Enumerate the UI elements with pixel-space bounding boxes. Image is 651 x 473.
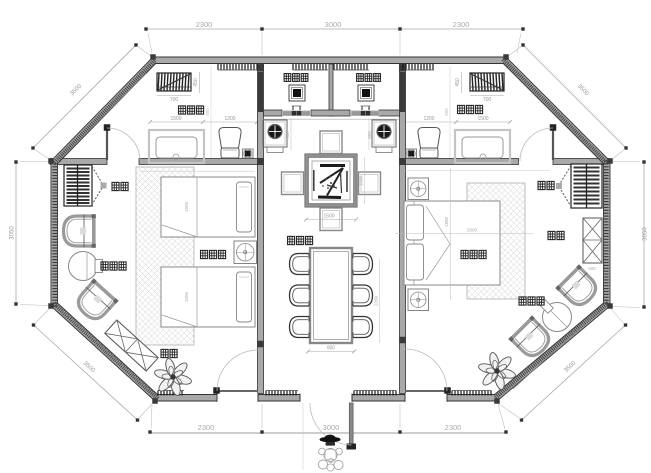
svg-text:2300: 2300 [445,423,462,432]
svg-text:700: 700 [170,97,179,103]
svg-text:450: 450 [455,78,461,87]
svg-text:2200: 2200 [374,295,379,306]
svg-text:2300: 2300 [453,20,470,29]
svg-text:1500: 1500 [184,291,189,302]
svg-text:400: 400 [588,266,596,271]
svg-text:1200: 1200 [423,116,434,122]
svg-text:3050: 3050 [10,226,16,240]
svg-text:600: 600 [285,131,290,139]
svg-text:700: 700 [483,97,492,103]
svg-text:1500: 1500 [184,201,189,212]
svg-text:3000: 3000 [325,20,342,29]
svg-text:450: 450 [193,78,199,87]
svg-text:1500: 1500 [359,175,364,186]
svg-text:1800: 1800 [444,216,449,227]
svg-text:600: 600 [367,131,372,139]
svg-text:800: 800 [444,108,449,116]
svg-text:3050: 3050 [643,227,649,241]
svg-text:2300: 2300 [198,423,215,432]
svg-text:800: 800 [205,108,210,116]
svg-text:2300: 2300 [196,20,213,29]
svg-text:1500: 1500 [323,214,334,220]
svg-text:2000: 2000 [467,228,478,233]
svg-text:3000: 3000 [323,423,340,432]
svg-text:1200: 1200 [224,116,235,122]
svg-text:900: 900 [327,346,336,352]
svg-text:1500: 1500 [170,116,181,122]
svg-text:1500: 1500 [477,116,488,122]
